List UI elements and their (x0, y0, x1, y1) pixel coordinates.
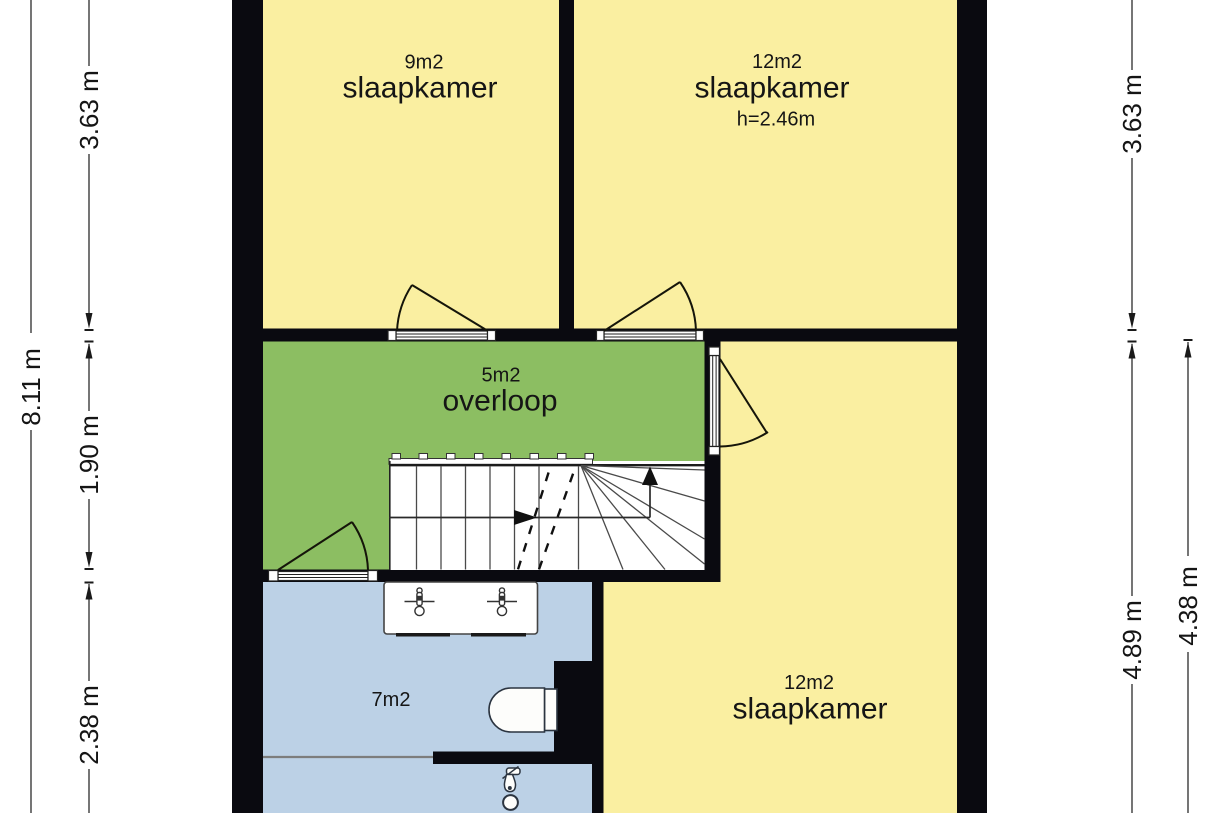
svg-text:5m2: 5m2 (482, 365, 521, 387)
svg-text:1.90 m: 1.90 m (74, 415, 104, 495)
svg-text:7m2: 7m2 (372, 689, 411, 711)
svg-text:3.63 m: 3.63 m (74, 70, 104, 150)
svg-text:slaapkamer: slaapkamer (342, 72, 497, 105)
svg-text:9m2: 9m2 (405, 52, 444, 74)
svg-text:4.38 m: 4.38 m (1173, 566, 1203, 646)
svg-text:overloop: overloop (442, 385, 557, 418)
svg-text:slaapkamer: slaapkamer (694, 72, 849, 105)
svg-text:h=2.46m: h=2.46m (737, 109, 815, 131)
svg-text:8.11 m: 8.11 m (16, 348, 46, 426)
svg-text:12m2: 12m2 (784, 672, 834, 694)
svg-text:3.63 m: 3.63 m (1117, 74, 1147, 154)
svg-text:4.89 m: 4.89 m (1117, 600, 1147, 680)
svg-text:slaapkamer: slaapkamer (732, 693, 887, 726)
svg-text:2.38 m: 2.38 m (74, 685, 104, 765)
svg-text:12m2: 12m2 (752, 51, 802, 73)
